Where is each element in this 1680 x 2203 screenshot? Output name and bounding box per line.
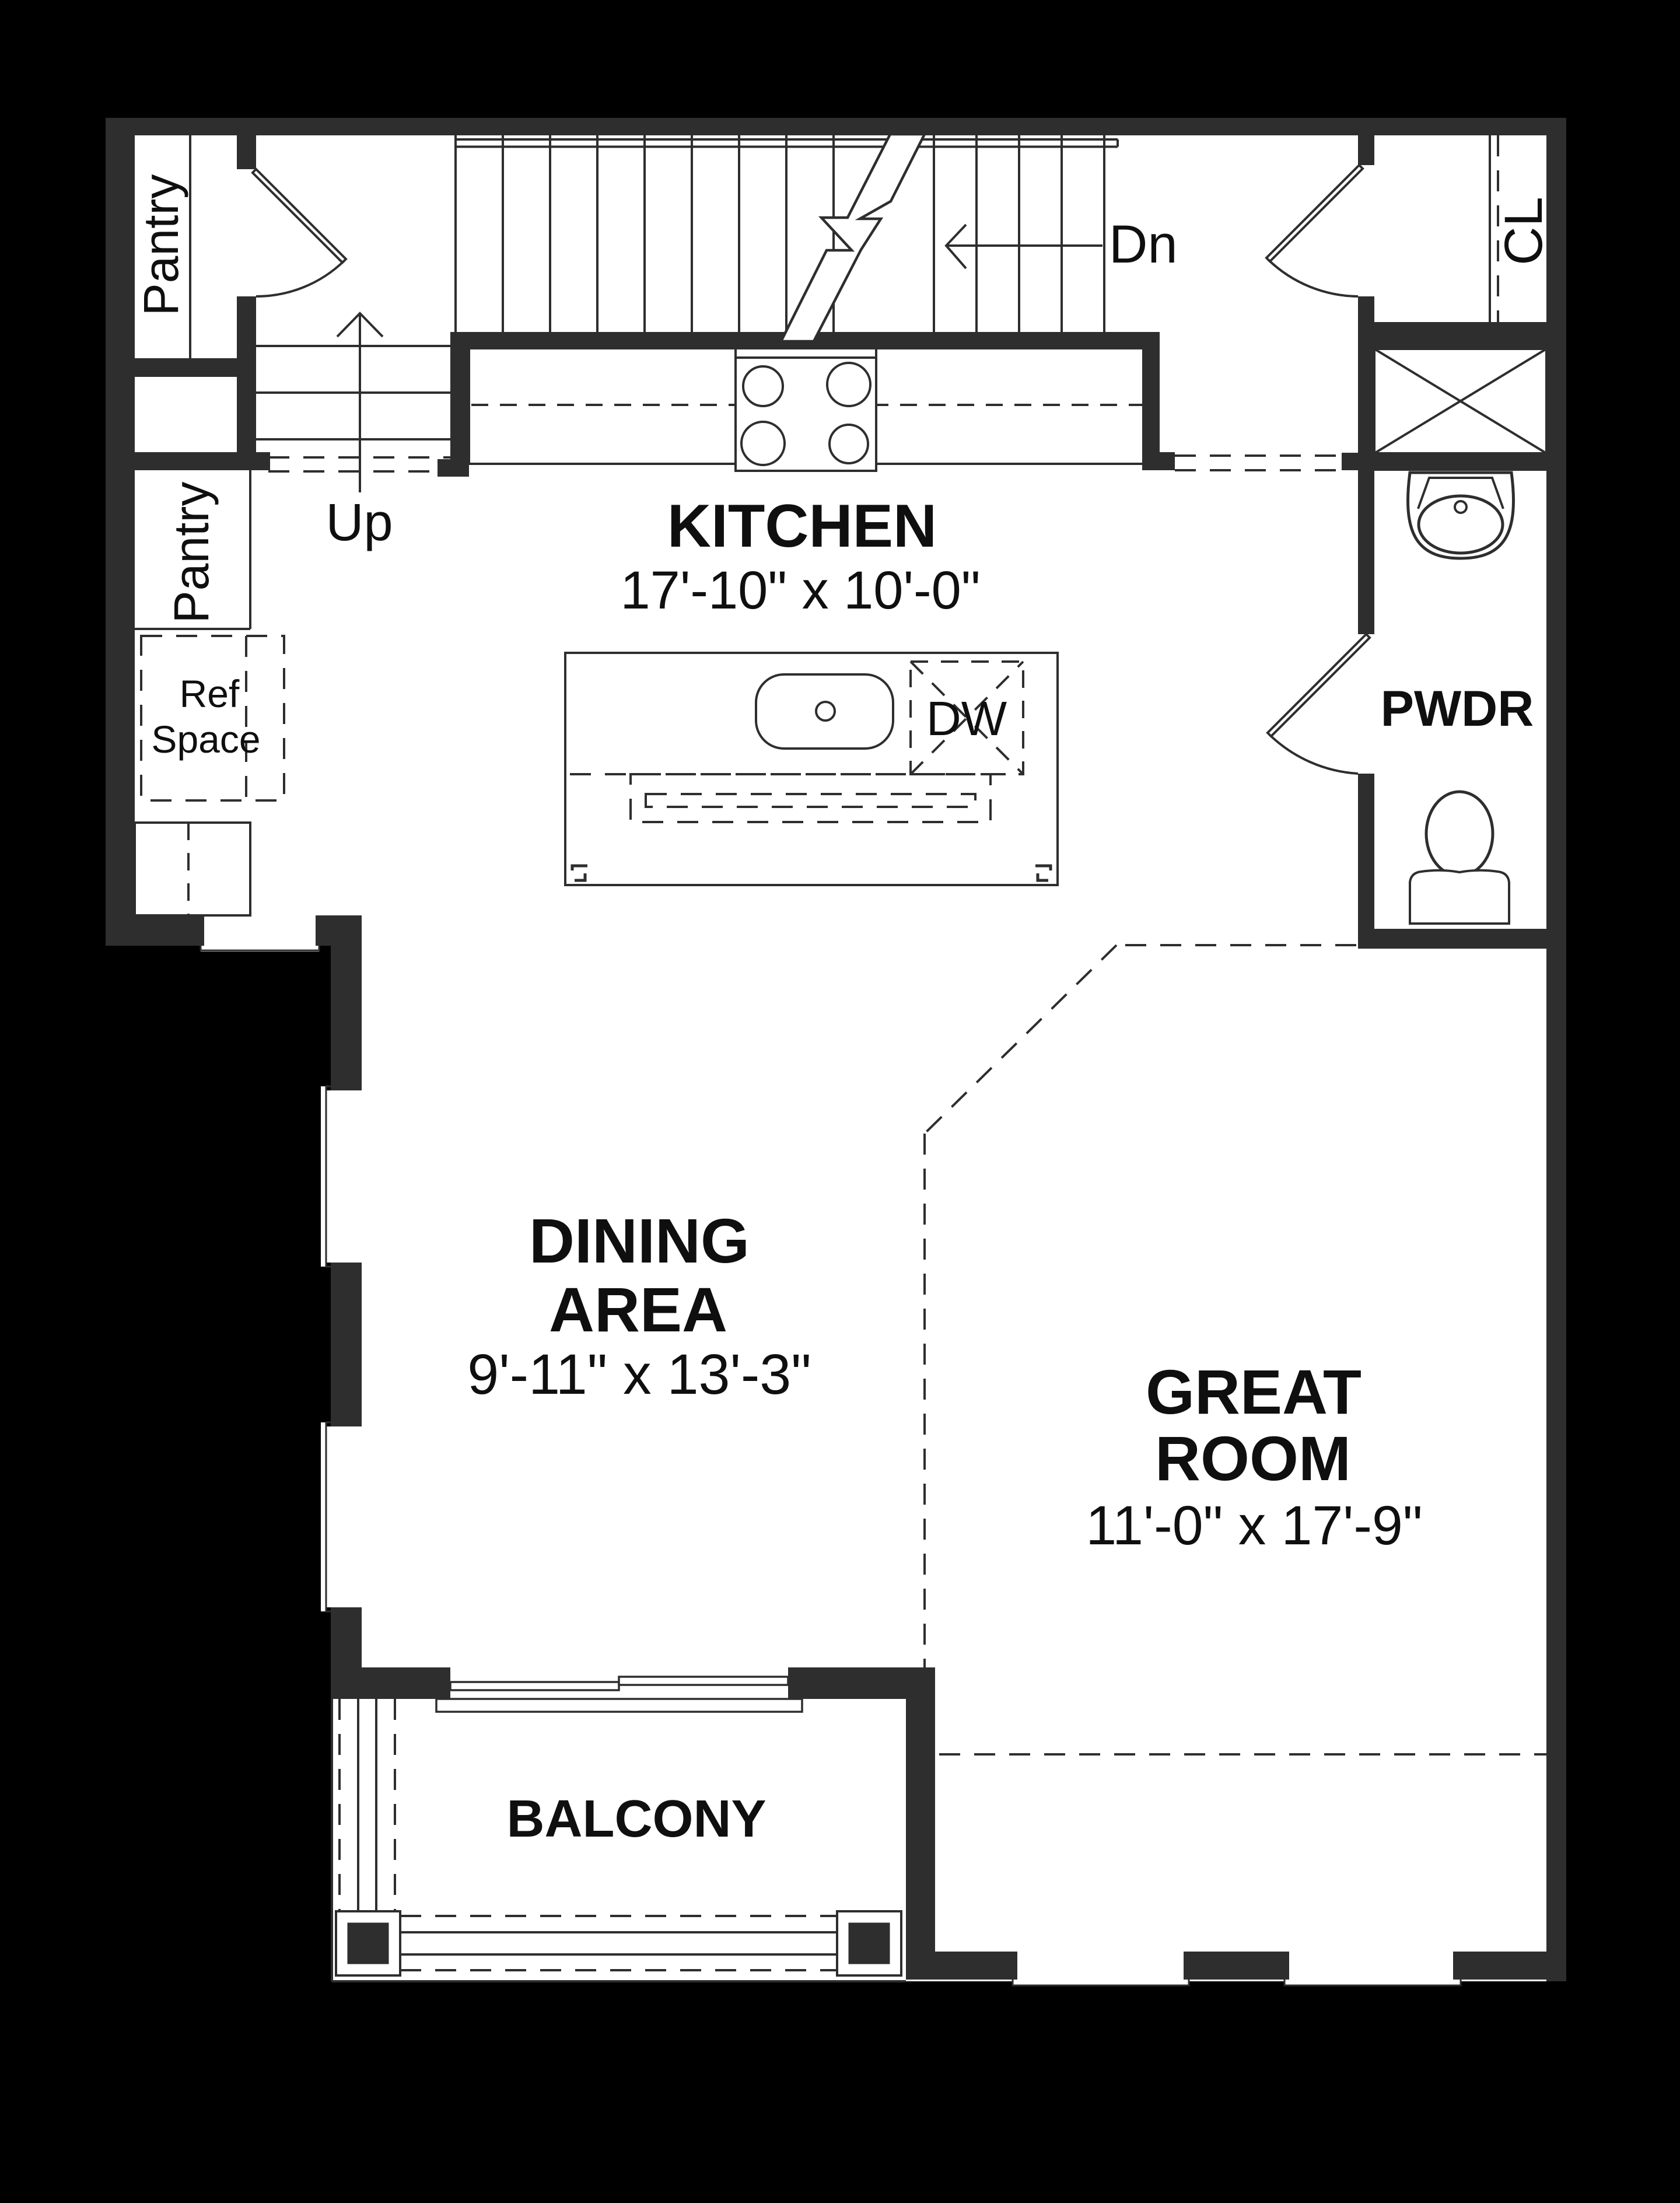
svg-text:GREAT: GREAT: [1146, 1356, 1361, 1427]
svg-text:Space: Space: [151, 718, 260, 761]
svg-text:9'-11" x 13'-3": 9'-11" x 13'-3": [467, 1342, 811, 1406]
svg-text:CL: CL: [1494, 197, 1553, 265]
svg-text:11'-0" x 17'-9": 11'-0" x 17'-9": [1086, 1495, 1422, 1557]
svg-text:DINING: DINING: [529, 1205, 750, 1276]
svg-text:DW: DW: [926, 691, 1007, 746]
svg-text:17'-10" x 10'-0": 17'-10" x 10'-0": [620, 561, 980, 620]
svg-text:Pantry: Pantry: [134, 174, 188, 316]
svg-text:Dn: Dn: [1109, 215, 1178, 274]
svg-text:PWDR: PWDR: [1381, 681, 1534, 737]
svg-text:ROOM: ROOM: [1155, 1423, 1351, 1494]
svg-text:Pantry: Pantry: [164, 482, 219, 624]
svg-text:BALCONY: BALCONY: [507, 1790, 766, 1848]
svg-text:AREA: AREA: [549, 1274, 727, 1345]
svg-text:Ref: Ref: [180, 672, 240, 715]
svg-text:KITCHEN: KITCHEN: [667, 492, 937, 560]
svg-text:Up: Up: [325, 494, 393, 552]
